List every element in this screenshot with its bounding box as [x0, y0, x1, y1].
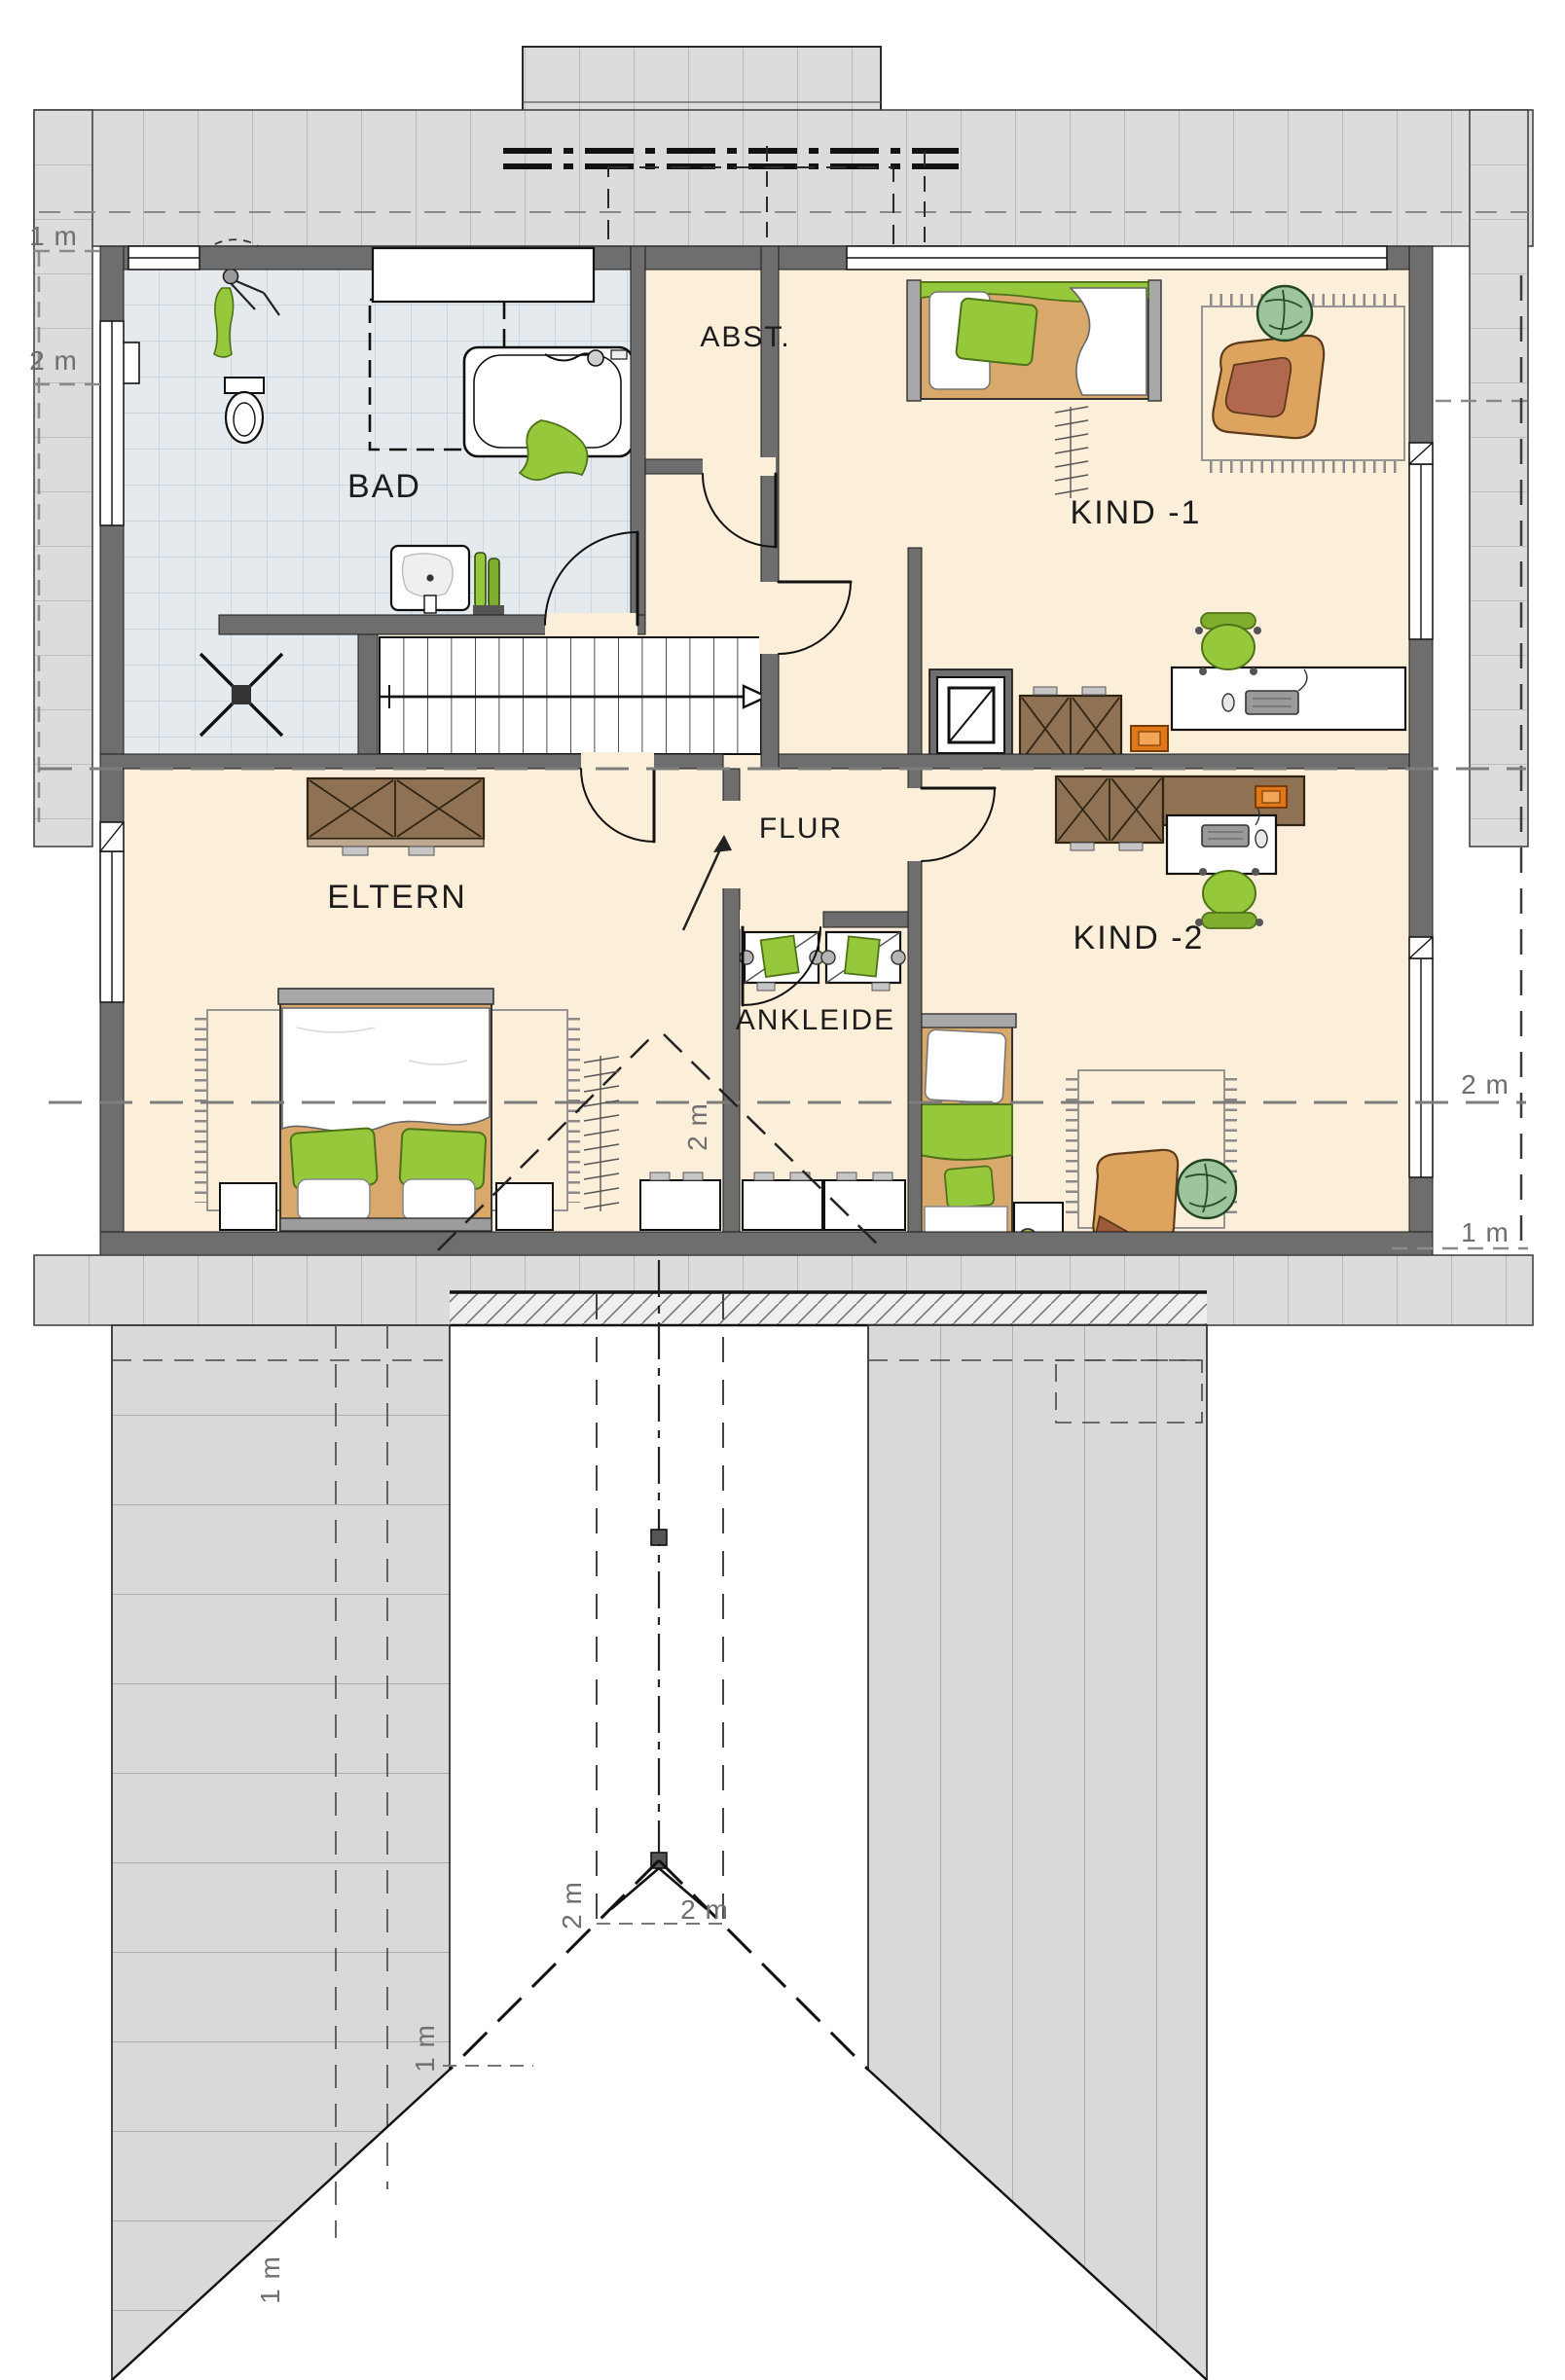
dim-label-ankleide-2m: 2 m	[682, 1102, 712, 1151]
desk-kind1	[1172, 667, 1405, 730]
chimney-shaft	[929, 669, 1012, 763]
window-kind2-east	[1409, 937, 1433, 1177]
wardrobe	[308, 778, 484, 855]
nightstand	[496, 1183, 553, 1230]
room-label-kind2: KIND -2	[1074, 920, 1205, 956]
window-bad-north	[128, 246, 200, 270]
staircase	[380, 637, 767, 754]
dresser-white	[640, 1180, 720, 1230]
window-kind1-east	[1409, 443, 1433, 639]
wall-south	[100, 1232, 1433, 1255]
room-label-kind1: KIND -1	[1071, 494, 1202, 531]
room-label-abst: ABST.	[700, 321, 790, 353]
nightstand	[220, 1183, 276, 1230]
dim-label-left-1m: 1 m	[29, 221, 78, 251]
dim-label-left-2m: 2 m	[29, 345, 78, 376]
double-bed	[278, 989, 493, 1232]
wall-kind2-west	[908, 548, 922, 1232]
dim-label-hip-1m: 1 m	[255, 2255, 285, 2304]
dresser-brown	[1056, 776, 1163, 850]
wall-kind1-kind2	[779, 754, 1409, 769]
window-eltern-west	[100, 822, 124, 1002]
wall-ankleide-north	[823, 912, 908, 927]
north-eave-band	[34, 110, 1533, 246]
plant	[1178, 1160, 1236, 1218]
drawer-unit	[821, 932, 905, 991]
window-bad-west	[100, 321, 124, 525]
dormer-roof	[523, 47, 881, 115]
bed-kind2	[916, 1014, 1016, 1253]
floorplan-attic: BAD ABST. KIND -1 FLUR ELTERN ANKLEIDE K…	[0, 0, 1565, 2380]
dim-label-gable-2m-left: 2 m	[557, 1881, 587, 1929]
dim-label-right-2m: 2 m	[1461, 1069, 1510, 1100]
room-label-bad: BAD	[347, 468, 421, 505]
section-hatch-strip	[450, 1292, 1207, 1325]
drawer-unit	[740, 932, 823, 991]
bed-kind1	[907, 280, 1161, 401]
sink	[391, 546, 469, 613]
room-label-eltern: ELTERN	[327, 879, 467, 916]
towel-green	[214, 288, 234, 357]
wardrobe-white	[743, 1180, 822, 1230]
wall-shower-stairs	[358, 634, 378, 754]
ridge-marker	[651, 1530, 667, 1545]
dormer-bay-shower	[373, 248, 594, 302]
toilet	[225, 378, 264, 443]
dim-label-right-1m: 1 m	[1461, 1217, 1510, 1247]
room-label-ankleide: ANKLEIDE	[736, 1004, 895, 1036]
plant	[1257, 286, 1312, 341]
bottles-green	[473, 553, 504, 615]
bean-bag	[1213, 336, 1324, 438]
dim-label-gable-2m-right: 2 m	[680, 1894, 729, 1925]
window-kind1-north	[847, 246, 1387, 270]
east-eave-band	[1470, 110, 1528, 847]
room-label-flur: FLUR	[759, 812, 843, 845]
dim-label-gable-1m: 1 m	[410, 2024, 440, 2073]
floorplan-canvas: BAD ABST. KIND -1 FLUR ELTERN ANKLEIDE K…	[0, 0, 1565, 2380]
dresser-brown	[1020, 687, 1121, 762]
